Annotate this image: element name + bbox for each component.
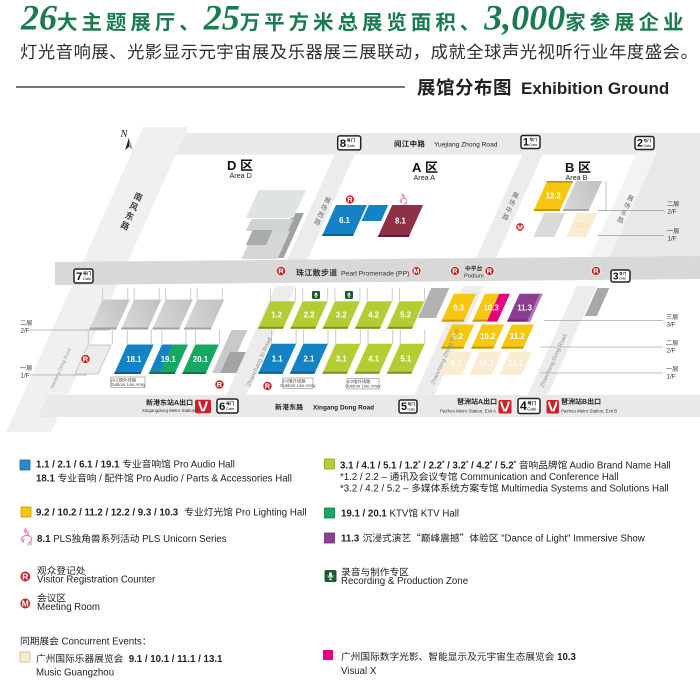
svg-text:Pro Audio Hall: Pro Audio Hall [171,460,235,471]
svg-text:Gate: Gate [347,143,355,148]
svg-text:Outdoor Line Array: Outdoor Line Array [110,382,146,387]
svg-text:9.1: 9.1 [451,359,463,368]
svg-text:19.1 / 20.1: 19.1 / 20.1 [341,509,389,520]
svg-text:Pro Audio / Parts & Accessorie: Pro Audio / Parts & Accessories Hall [134,474,292,485]
svg-text:1: 1 [523,137,529,149]
svg-text:Gate: Gate [226,406,234,411]
svg-text:R: R [265,382,271,391]
svg-text:1/F: 1/F [21,373,30,380]
svg-text:KTV: KTV [390,509,409,520]
svg-text:25: 25 [203,0,240,38]
svg-text:12.2: 12.2 [546,192,562,201]
svg-text:R: R [347,195,353,204]
svg-text:Xingang Dong Road: Xingang Dong Road [313,405,374,412]
svg-text:Audio Brand Name Hall: Audio Brand Name Hall [567,461,670,472]
svg-text:PLS Unicorn Series: PLS Unicorn Series [139,534,226,545]
svg-text:18.1: 18.1 [36,474,58,485]
svg-text:R: R [83,355,89,364]
svg-text:Recording & Production Zone: Recording & Production Zone [341,576,468,587]
svg-text:R: R [487,267,493,276]
svg-text:M: M [22,599,29,609]
svg-text:A: A [478,399,483,406]
svg-text:N: N [120,129,129,140]
svg-text:2.2: 2.2 [304,311,316,320]
svg-text:Pazhou Metro Station, Exit A: Pazhou Metro Station, Exit A [440,409,496,414]
svg-text:3.2: 3.2 [336,311,348,320]
svg-text:8.1: 8.1 [37,534,53,545]
svg-text:20.1: 20.1 [193,355,209,364]
svg-text:A: A [174,400,179,407]
svg-text:/ 2.2: / 2.2 [421,461,443,472]
svg-text:Outdoor Line Array: Outdoor Line Array [345,384,381,389]
svg-text:9.2 / 10.2 / 11.2 / 12.2 / 9.3: 9.2 / 10.2 / 11.2 / 12.2 / 9.3 / 10.3 [36,508,184,519]
svg-text:9.1 / 10.1 / 11.1 / 13.1: 9.1 / 10.1 / 11.1 / 13.1 [129,654,223,665]
svg-text:1.1 / 2.1 / 6.1 / 19.1: 1.1 / 2.1 / 6.1 / 19.1 [36,460,122,471]
svg-text:Communication and Conference H: Communication and Conference Hall [458,472,619,483]
svg-text:Yuejiang Zhong Road: Yuejiang Zhong Road [434,142,498,149]
svg-text:Gate: Gate [619,277,626,281]
svg-text:3/F: 3/F [667,322,676,329]
svg-text:11.1: 11.1 [508,359,524,368]
svg-text:R: R [593,267,599,276]
svg-text:/: / [96,474,104,485]
svg-text:Visitor Registration Counter: Visitor Registration Counter [37,575,156,586]
svg-text:8.1: 8.1 [395,217,407,226]
svg-text:13.1: 13.1 [575,222,589,229]
svg-text:Pearl Promenade (PP): Pearl Promenade (PP) [341,271,409,278]
svg-text:M: M [413,267,419,276]
svg-text:18.1: 18.1 [126,355,142,364]
svg-text:3.1 / 4.1 / 5.1 / 1.2: 3.1 / 4.1 / 5.1 / 1.2 [340,461,418,472]
svg-text:*3.2 / 4.2 / 5.2 –: *3.2 / 4.2 / 5.2 – [340,484,411,495]
svg-text:11.3: 11.3 [341,534,362,545]
svg-text:/ 5.2: / 5.2 [492,461,514,472]
svg-text:4.2: 4.2 [368,311,380,320]
svg-text:4: 4 [520,399,527,413]
svg-text:Gate: Gate [83,276,91,281]
svg-text:"Dance of Light" Immersive Sho: "Dance of Light" Immersive Show [501,534,646,545]
svg-text:26: 26 [20,0,57,38]
svg-text:Exhibition Ground: Exhibition Ground [521,79,669,98]
svg-text:Gate: Gate [527,407,537,412]
svg-text:5: 5 [401,401,407,413]
svg-text:1.2: 1.2 [271,311,283,320]
svg-text:Visual X: Visual X [341,666,377,677]
svg-text:4.1: 4.1 [368,354,380,363]
svg-text:1/F: 1/F [667,374,676,381]
svg-text:10.3: 10.3 [484,303,500,312]
svg-text:/ 3.2: / 3.2 [444,461,466,472]
svg-text:10.3: 10.3 [557,652,576,663]
svg-text:11.2: 11.2 [510,332,525,341]
svg-text:9.3: 9.3 [453,303,465,312]
svg-text:2: 2 [637,138,643,150]
svg-text:19.1: 19.1 [161,355,177,364]
svg-text:Concurrent Events: Concurrent Events [59,637,142,648]
svg-text:10.2: 10.2 [480,332,496,341]
svg-text:*1.2 / 2.2 –: *1.2 / 2.2 – [340,472,390,483]
svg-text:Area B: Area B [566,173,588,182]
svg-text:Meeting Room: Meeting Room [37,602,100,613]
svg-text:R: R [22,572,28,582]
svg-text:6.1: 6.1 [339,216,351,225]
svg-text:Area D: Area D [230,171,252,180]
svg-text:R: R [217,380,223,389]
svg-text:R: R [452,267,458,276]
svg-text:Outdoor Line Array: Outdoor Line Array [280,383,316,388]
svg-text:3.1: 3.1 [336,354,348,363]
svg-text:Area A: Area A [414,173,436,182]
svg-text:PLS: PLS [53,534,72,545]
svg-text:Gate: Gate [643,144,651,148]
svg-text:3,000: 3,000 [483,0,565,38]
svg-text:/ 4.2: / 4.2 [468,461,490,472]
svg-text:2/F: 2/F [667,348,676,355]
svg-text:5.2: 5.2 [400,311,412,320]
svg-text:2/F: 2/F [668,209,677,216]
svg-text:B: B [582,399,587,406]
svg-text:5.1: 5.1 [400,354,412,363]
svg-text:7: 7 [76,271,82,283]
svg-text:11.3: 11.3 [517,303,532,312]
svg-text:KTV Hall: KTV Hall [418,509,459,520]
svg-text:2/F: 2/F [21,328,30,335]
svg-text:Multimedia Systems and Solutio: Multimedia Systems and Solutions Hall [499,484,669,495]
svg-text:10.1: 10.1 [478,359,494,368]
svg-text:Gate: Gate [407,407,415,411]
svg-text:6: 6 [219,401,225,413]
svg-text:1.1: 1.1 [272,354,284,363]
svg-text:Music Guangzhou: Music Guangzhou [36,668,114,679]
svg-text:Gate: Gate [529,143,537,147]
svg-text:M: M [517,224,523,231]
svg-text:2.1: 2.1 [304,354,316,363]
svg-text:1/F: 1/F [668,236,677,243]
svg-text:R: R [278,267,284,276]
svg-text:Podium: Podium [464,274,484,280]
svg-text:Pazhou Metro Station, Exit B: Pazhou Metro Station, Exit B [561,409,617,414]
svg-text:Pro Lighting Hall: Pro Lighting Hall [233,508,307,519]
